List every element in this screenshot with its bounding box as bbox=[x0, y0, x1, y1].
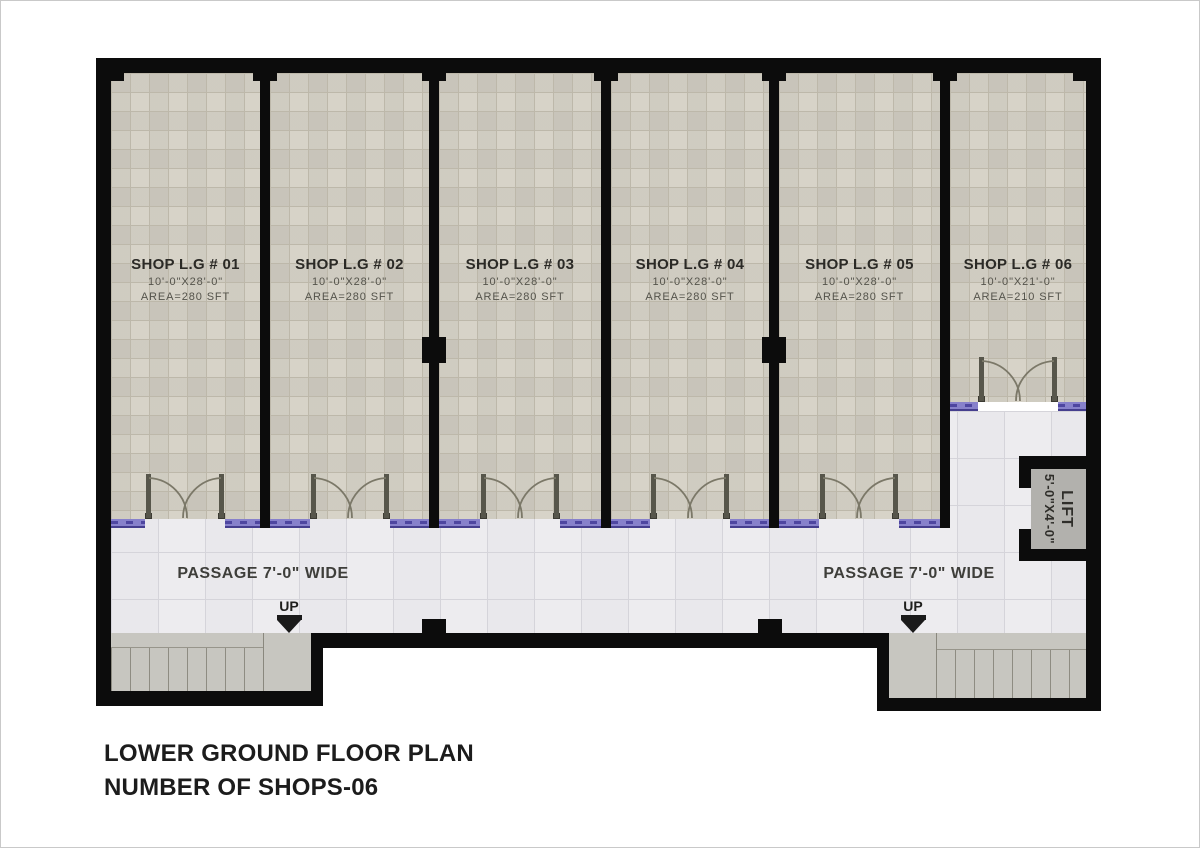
plan-title-line2: NUMBER OF SHOPS-06 bbox=[104, 771, 474, 805]
shop-6-label: SHOP L.G # 06 10'-0"X21'-0" AREA=210 SFT bbox=[950, 255, 1086, 305]
partition-wall bbox=[601, 73, 611, 528]
storefront-glazing bbox=[439, 519, 480, 528]
shop-name: SHOP L.G # 06 bbox=[950, 255, 1086, 275]
storefront-glazing bbox=[899, 519, 940, 528]
plan-title: LOWER GROUND FLOOR PLAN NUMBER OF SHOPS-… bbox=[104, 737, 474, 805]
partition-wall bbox=[429, 73, 439, 528]
plan-title-line1: LOWER GROUND FLOOR PLAN bbox=[104, 737, 474, 771]
shop-name: SHOP L.G # 04 bbox=[611, 255, 769, 275]
double-door-icon bbox=[978, 356, 1058, 402]
floor-plan-sheet: LIFT 5'-0"X4'-0" SHOP L.G # 01 10'-0"X28… bbox=[0, 0, 1200, 848]
exterior-wall-bottom bbox=[323, 633, 877, 648]
shop-area: AREA=280 SFT bbox=[611, 290, 769, 305]
passage-left-label: PASSAGE 7'-0" WIDE bbox=[153, 565, 373, 583]
stair-right-up-label: UP bbox=[887, 598, 939, 614]
column-notch bbox=[594, 73, 618, 81]
storefront-glazing bbox=[611, 519, 650, 528]
exterior-wall-right bbox=[1086, 58, 1101, 711]
stair-right-wall bbox=[877, 698, 1101, 711]
storefront-glazing bbox=[779, 519, 819, 528]
column bbox=[422, 337, 446, 363]
stair-left-landing-edge bbox=[263, 633, 264, 691]
shop-area: AREA=280 SFT bbox=[439, 290, 601, 305]
column-notch bbox=[422, 73, 446, 81]
stair-right-landing-edge bbox=[936, 633, 937, 698]
shop-area: AREA=280 SFT bbox=[111, 290, 260, 305]
column-notch bbox=[933, 73, 957, 81]
double-door-icon bbox=[480, 473, 560, 519]
stair-left-treads bbox=[111, 647, 263, 692]
stair-left-up-label: UP bbox=[263, 598, 315, 614]
column-notch bbox=[1073, 73, 1086, 81]
shop-4-label: SHOP L.G # 04 10'-0"X28'-0" AREA=280 SFT bbox=[611, 255, 769, 305]
storefront-glazing bbox=[111, 519, 145, 528]
double-door-icon bbox=[650, 473, 730, 519]
partition-wall bbox=[769, 73, 779, 528]
shop-area: AREA=280 SFT bbox=[270, 290, 429, 305]
double-door-icon bbox=[145, 473, 225, 519]
passage-right-label: PASSAGE 7'-0" WIDE bbox=[799, 565, 1019, 583]
storefront-glazing bbox=[950, 402, 978, 411]
column-notch bbox=[111, 73, 124, 81]
storefront-glazing bbox=[225, 519, 260, 528]
shop-name: SHOP L.G # 01 bbox=[111, 255, 260, 275]
shop-name: SHOP L.G # 05 bbox=[779, 255, 940, 275]
shop-area: AREA=210 SFT bbox=[950, 290, 1086, 305]
partition-wall bbox=[260, 73, 270, 528]
shop-dimension: 10'-0"X28'-0" bbox=[270, 275, 429, 290]
stair-right-treads bbox=[936, 649, 1086, 699]
lift-label: LIFT 5'-0"X4'-0" bbox=[1041, 474, 1075, 544]
lift-name: LIFT bbox=[1057, 474, 1075, 544]
shop-dimension: 10'-0"X28'-0" bbox=[611, 275, 769, 290]
storefront-glazing bbox=[560, 519, 601, 528]
shop-2-label: SHOP L.G # 02 10'-0"X28'-0" AREA=280 SFT bbox=[270, 255, 429, 305]
shop-6-floor bbox=[950, 73, 1086, 402]
shop-name: SHOP L.G # 02 bbox=[270, 255, 429, 275]
column-notch bbox=[253, 73, 277, 81]
storefront-glazing bbox=[390, 519, 429, 528]
stair-right-up-arrow-icon bbox=[901, 620, 925, 633]
double-door-icon bbox=[310, 473, 390, 519]
lift-dimension: 5'-0"X4'-0" bbox=[1041, 474, 1057, 544]
partition-wall bbox=[940, 73, 950, 528]
lift-wall bbox=[1019, 456, 1031, 488]
shop-dimension: 10'-0"X28'-0" bbox=[439, 275, 601, 290]
storefront-glazing bbox=[730, 519, 769, 528]
shop-dimension: 10'-0"X21'-0" bbox=[950, 275, 1086, 290]
double-door-icon bbox=[819, 473, 899, 519]
shop-5-label: SHOP L.G # 05 10'-0"X28'-0" AREA=280 SFT bbox=[779, 255, 940, 305]
exterior-wall-left bbox=[96, 58, 111, 706]
shop-area: AREA=280 SFT bbox=[779, 290, 940, 305]
lift-wall bbox=[1019, 529, 1031, 561]
shop-dimension: 10'-0"X28'-0" bbox=[779, 275, 940, 290]
shop-name: SHOP L.G # 03 bbox=[439, 255, 601, 275]
stair-left-up-arrow-icon bbox=[277, 620, 301, 633]
storefront-glazing bbox=[270, 519, 310, 528]
stair-left-wall bbox=[96, 691, 323, 706]
shop-dimension: 10'-0"X28'-0" bbox=[111, 275, 260, 290]
storefront-glazing bbox=[1058, 402, 1086, 411]
shop-3-label: SHOP L.G # 03 10'-0"X28'-0" AREA=280 SFT bbox=[439, 255, 601, 305]
shop-1-label: SHOP L.G # 01 10'-0"X28'-0" AREA=280 SFT bbox=[111, 255, 260, 305]
exterior-wall-top bbox=[96, 58, 1101, 73]
column-notch bbox=[762, 73, 786, 81]
column bbox=[762, 337, 786, 363]
